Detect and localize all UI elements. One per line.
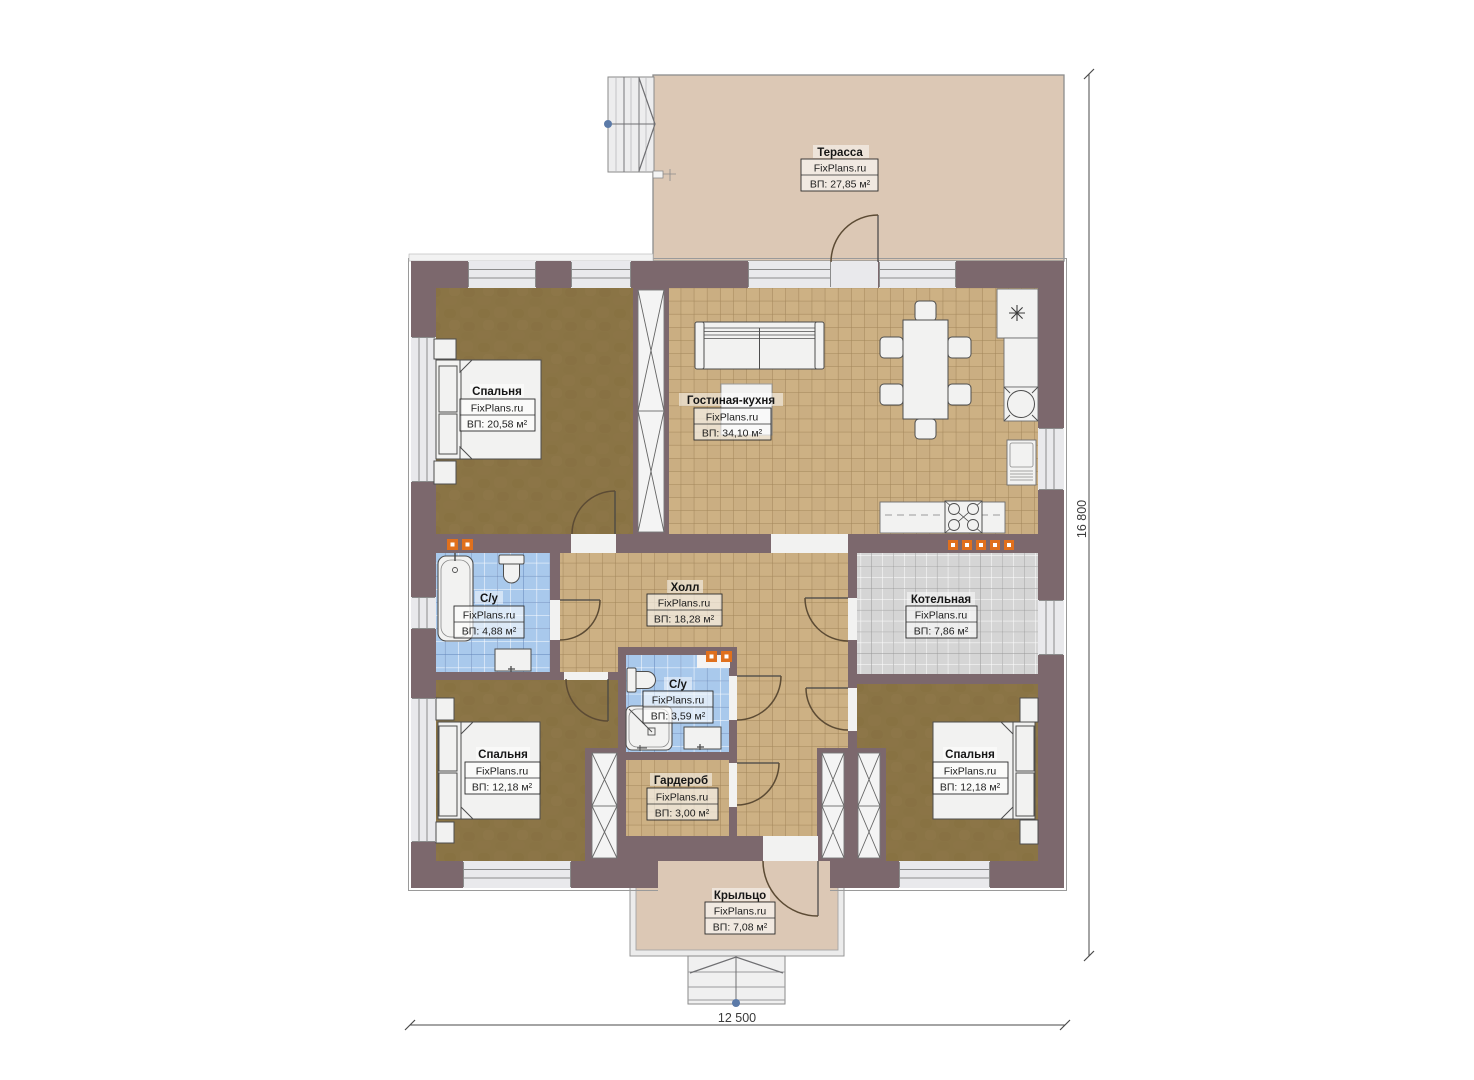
svg-text:FixPlans.ru: FixPlans.ru (814, 163, 867, 175)
svg-text:16 800: 16 800 (1075, 500, 1089, 538)
svg-text:Гостиная-кухня: Гостиная-кухня (687, 395, 775, 407)
svg-text:FixPlans.ru: FixPlans.ru (652, 695, 705, 707)
svg-text:FixPlans.ru: FixPlans.ru (471, 403, 524, 415)
svg-text:Холл: Холл (671, 582, 700, 594)
svg-text:ВП: 4,88 м²: ВП: 4,88 м² (462, 626, 517, 638)
svg-text:Спальня: Спальня (478, 749, 528, 761)
svg-text:FixPlans.ru: FixPlans.ru (656, 792, 709, 804)
svg-text:Спальня: Спальня (472, 386, 522, 398)
svg-text:Крыльцо: Крыльцо (714, 890, 766, 902)
svg-text:FixPlans.ru: FixPlans.ru (476, 766, 529, 778)
svg-text:ВП: 27,85 м²: ВП: 27,85 м² (810, 179, 871, 191)
svg-text:Гардероб: Гардероб (654, 775, 708, 787)
svg-text:ВП: 12,18 м²: ВП: 12,18 м² (472, 782, 533, 794)
svg-text:ВП: 3,00 м²: ВП: 3,00 м² (655, 808, 710, 820)
svg-text:Котельная: Котельная (911, 594, 971, 606)
svg-text:ВП: 7,08 м²: ВП: 7,08 м² (713, 922, 768, 934)
svg-text:ВП: 7,86 м²: ВП: 7,86 м² (914, 626, 969, 638)
svg-text:ВП: 12,18 м²: ВП: 12,18 м² (940, 782, 1001, 794)
svg-text:ВП: 34,10 м²: ВП: 34,10 м² (702, 428, 763, 440)
svg-text:С/у: С/у (669, 679, 688, 691)
svg-text:FixPlans.ru: FixPlans.ru (463, 610, 516, 622)
svg-text:С/у: С/у (480, 593, 499, 605)
svg-text:Терасса: Терасса (817, 147, 863, 159)
svg-text:12 500: 12 500 (718, 1011, 756, 1025)
svg-text:FixPlans.ru: FixPlans.ru (915, 610, 968, 622)
svg-text:ВП: 3,59 м²: ВП: 3,59 м² (651, 711, 706, 723)
svg-text:ВП: 20,58 м²: ВП: 20,58 м² (467, 419, 528, 431)
svg-text:FixPlans.ru: FixPlans.ru (944, 766, 997, 778)
svg-text:FixPlans.ru: FixPlans.ru (714, 906, 767, 918)
svg-text:ВП: 18,28 м²: ВП: 18,28 м² (654, 614, 715, 626)
svg-text:Спальня: Спальня (945, 749, 995, 761)
svg-text:FixPlans.ru: FixPlans.ru (658, 598, 711, 610)
svg-text:FixPlans.ru: FixPlans.ru (706, 412, 759, 424)
